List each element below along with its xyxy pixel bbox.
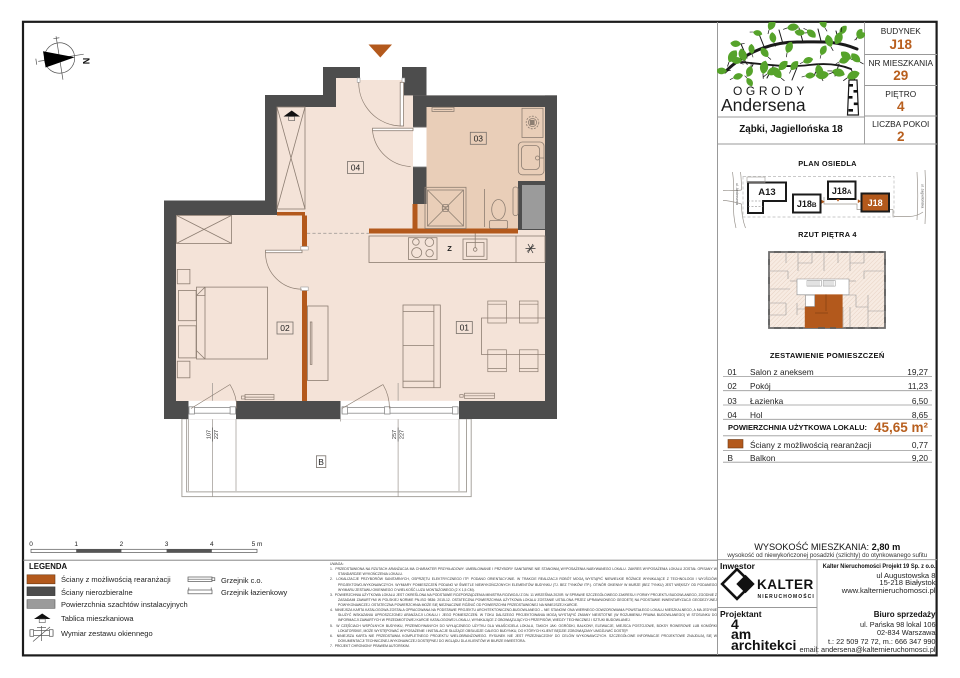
svg-text:NIERUCHOMOŚCI: NIERUCHOMOŚCI bbox=[758, 593, 815, 600]
svg-text:KALTER: KALTER bbox=[757, 577, 814, 592]
